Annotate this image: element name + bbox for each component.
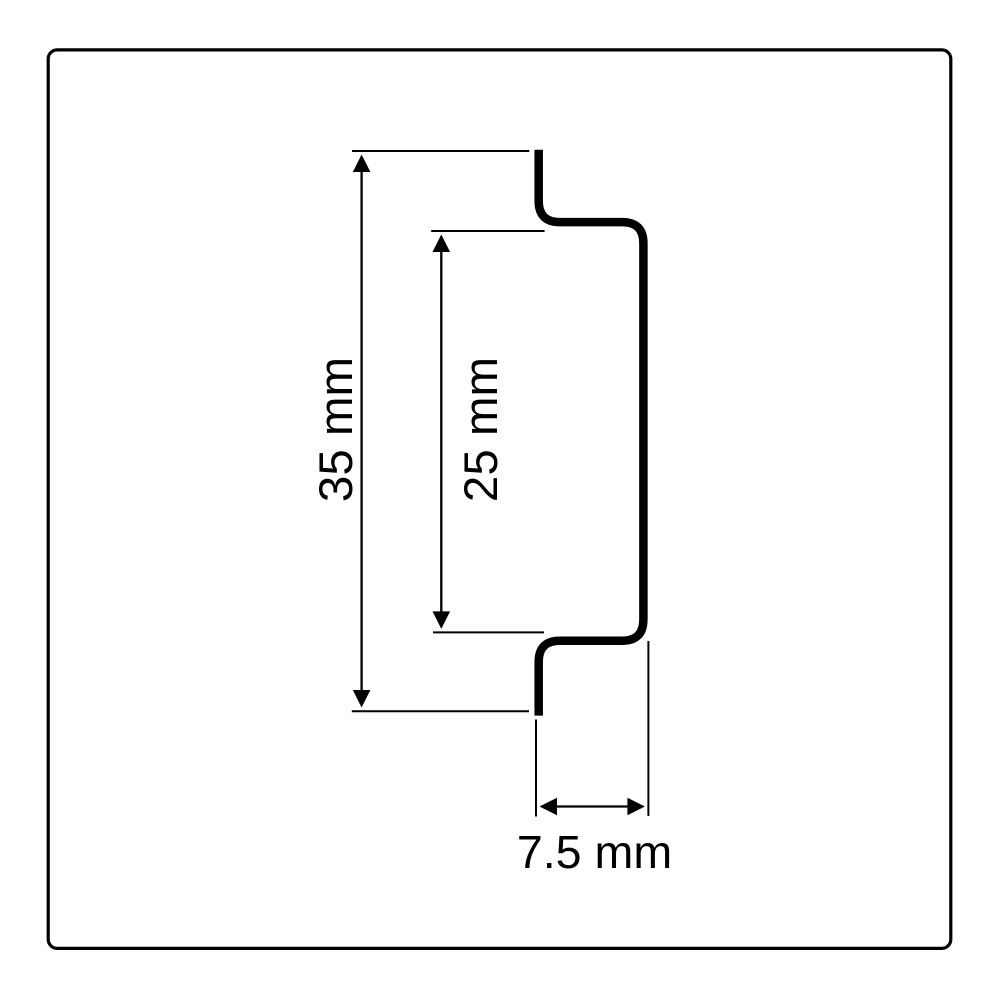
svg-text:7.5 mm: 7.5 mm: [517, 826, 672, 878]
svg-text:25 mm: 25 mm: [455, 357, 508, 502]
svg-text:35 mm: 35 mm: [310, 357, 363, 502]
